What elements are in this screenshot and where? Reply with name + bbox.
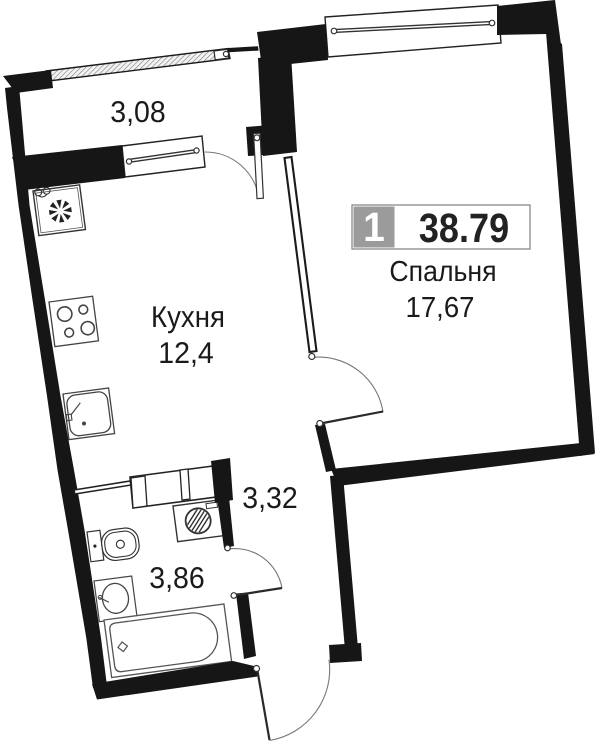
svg-text:3,86: 3,86 — [149, 562, 204, 595]
svg-text:38.79: 38.79 — [419, 205, 509, 251]
svg-text:17,67: 17,67 — [406, 292, 475, 324]
svg-text:3,32: 3,32 — [242, 482, 297, 515]
svg-text:Спальня: Спальня — [389, 256, 496, 288]
svg-text:1: 1 — [363, 204, 385, 250]
svg-text:Кухня: Кухня — [151, 301, 225, 334]
svg-text:3,08: 3,08 — [110, 96, 165, 129]
svg-text:12,4: 12,4 — [158, 337, 213, 370]
